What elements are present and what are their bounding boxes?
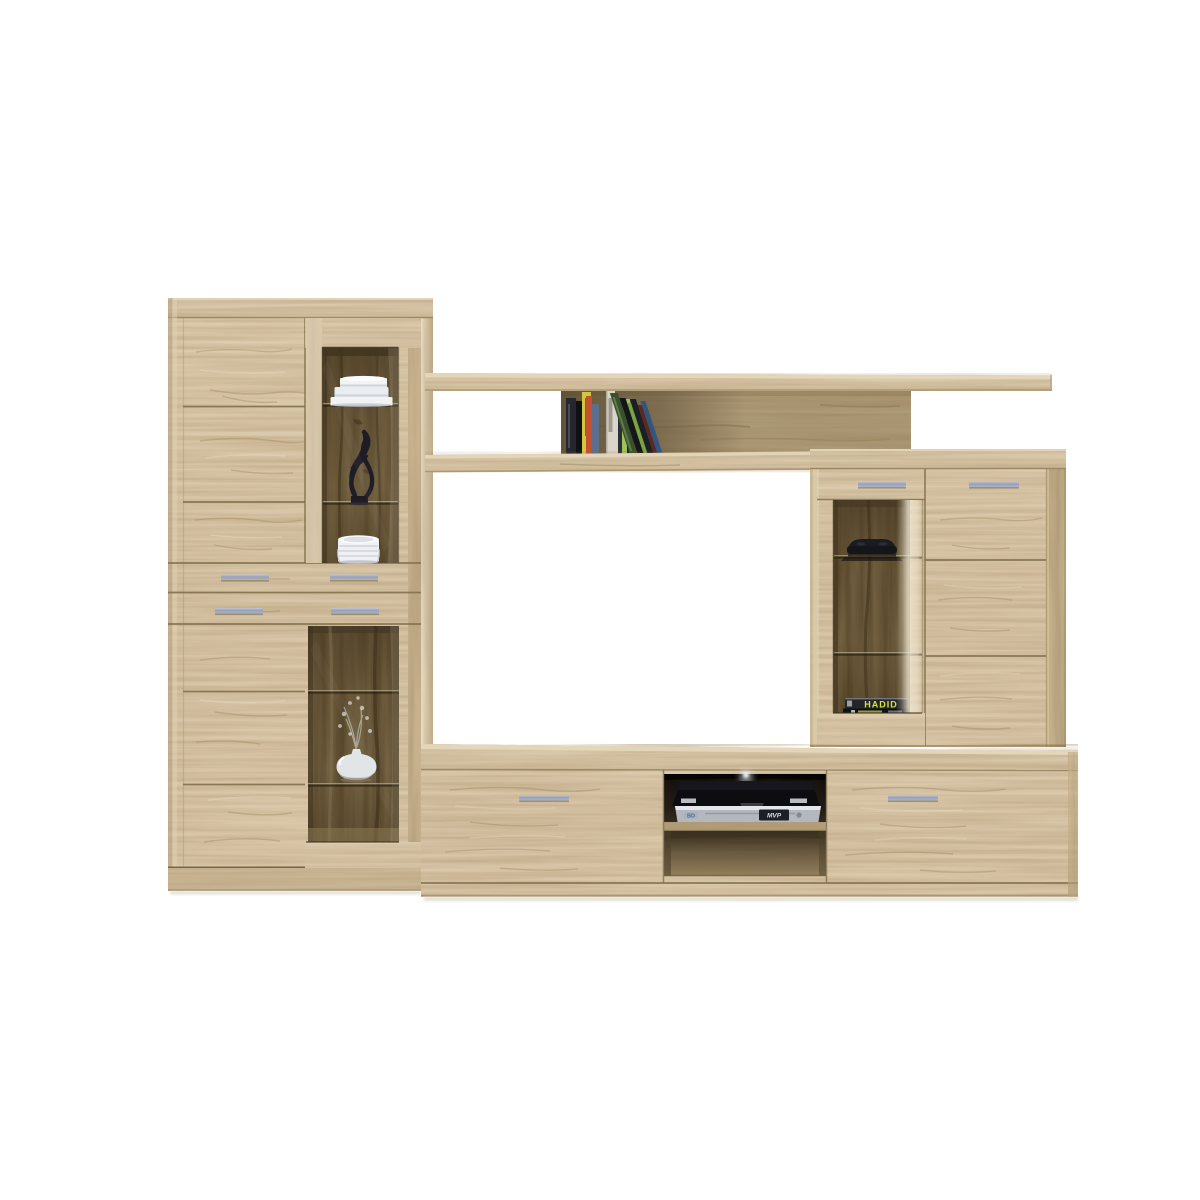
svg-text:HADID: HADID	[864, 700, 898, 710]
svg-text:MVP: MVP	[767, 813, 782, 820]
svg-text:BD: BD	[687, 814, 695, 820]
